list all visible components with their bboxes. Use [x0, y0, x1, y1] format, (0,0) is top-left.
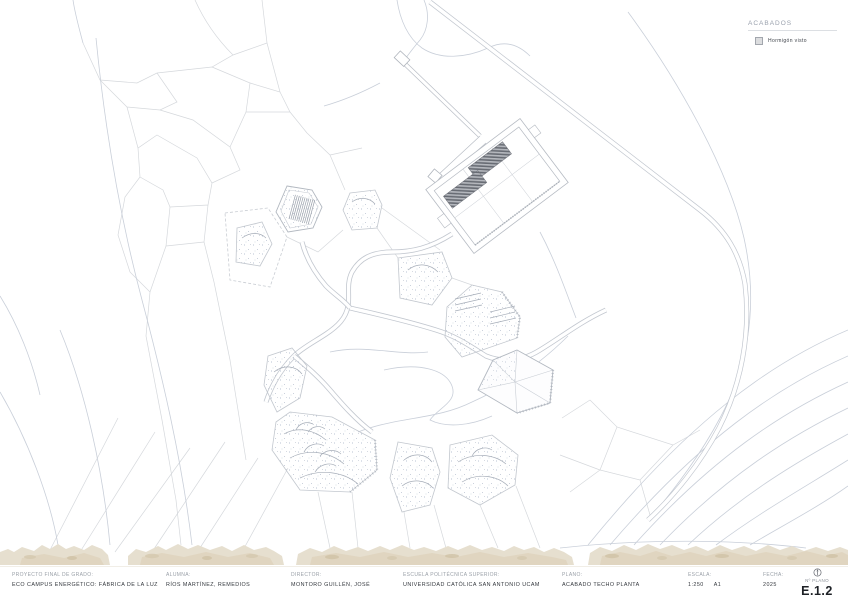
titleblock-field-escuela: ESCUELA POLITÉCNICA SUPERIOR: UNIVERSIDA…	[403, 572, 540, 588]
concrete-swatch-icon	[755, 37, 763, 45]
vegetation-area	[398, 252, 452, 305]
vegetation-area	[264, 348, 307, 412]
vegetation-area	[448, 435, 518, 505]
vegetation-area	[236, 222, 272, 266]
titleblock-field-fecha: FECHA: 2025	[763, 572, 783, 588]
hex-pavilion	[276, 186, 322, 232]
sheet-format: A1	[714, 582, 722, 588]
plan-sheet: ACABADOS Hormigón visto PROYECTO FINAL D…	[0, 0, 848, 599]
titleblock-field-escala: ESCALA: 1:250A1	[688, 572, 721, 588]
site-plan-drawing	[0, 0, 848, 566]
legend-item-label: Hormigón visto	[768, 38, 807, 44]
field-value: ECO CAMPUS ENERGÉTICO: FÁBRICA DE LA LUZ	[12, 582, 158, 588]
titleblock-field-proyecto: PROYECTO FINAL DE GRADO: ECO CAMPUS ENER…	[12, 572, 158, 588]
shoreline-diagonals	[588, 330, 848, 545]
field-label: FECHA:	[763, 572, 783, 578]
field-label: DIRECTOR:	[291, 572, 370, 578]
field-value: ACABADO TECHO PLANTA	[562, 582, 640, 588]
vegetation-area	[390, 442, 440, 512]
vegetation-area	[343, 190, 382, 230]
field-value: UNIVERSIDAD CATÓLICA SAN ANTONIO UCAM	[403, 582, 540, 588]
legend-item: Hormigón visto	[748, 37, 838, 45]
field-label: ALUMNA:	[166, 572, 250, 578]
title-block: PROYECTO FINAL DE GRADO: ECO CAMPUS ENER…	[0, 566, 848, 599]
field-label: ESCALA:	[688, 572, 721, 578]
scale-value: 1:250	[688, 582, 704, 588]
legend-acabados: ACABADOS Hormigón visto	[748, 20, 838, 45]
field-value: RÍOS MARTÍNEZ, REMEDIOS	[166, 582, 250, 588]
field-value: 1:250A1	[688, 582, 721, 588]
north-arrow-icon	[813, 568, 822, 577]
titleblock-field-director: DIRECTOR: MONTORO GUILLÉN, JOSÉ	[291, 572, 370, 588]
field-label: PLANO:	[562, 572, 640, 578]
vegetation-area	[445, 285, 520, 357]
legend-rule	[748, 30, 837, 31]
titleblock-field-plano: PLANO: ACABADO TECHO PLANTA	[562, 572, 640, 588]
field-label: ESCUELA POLITÉCNICA SUPERIOR:	[403, 572, 540, 578]
legend-title: ACABADOS	[748, 20, 838, 27]
field-label: Nº PLANO	[794, 578, 840, 583]
field-label: PROYECTO FINAL DE GRADO:	[12, 572, 158, 578]
titleblock-field-num-plano: Nº PLANO E.1.2	[794, 568, 840, 598]
main-building	[419, 114, 574, 259]
titleblock-field-alumna: ALUMNA: RÍOS MARTÍNEZ, REMEDIOS	[166, 572, 250, 588]
field-value: MONTORO GUILLÉN, JOSÉ	[291, 582, 370, 588]
field-value: 2025	[763, 582, 783, 588]
terrain-band	[0, 544, 848, 565]
sheet-number: E.1.2	[794, 584, 840, 598]
